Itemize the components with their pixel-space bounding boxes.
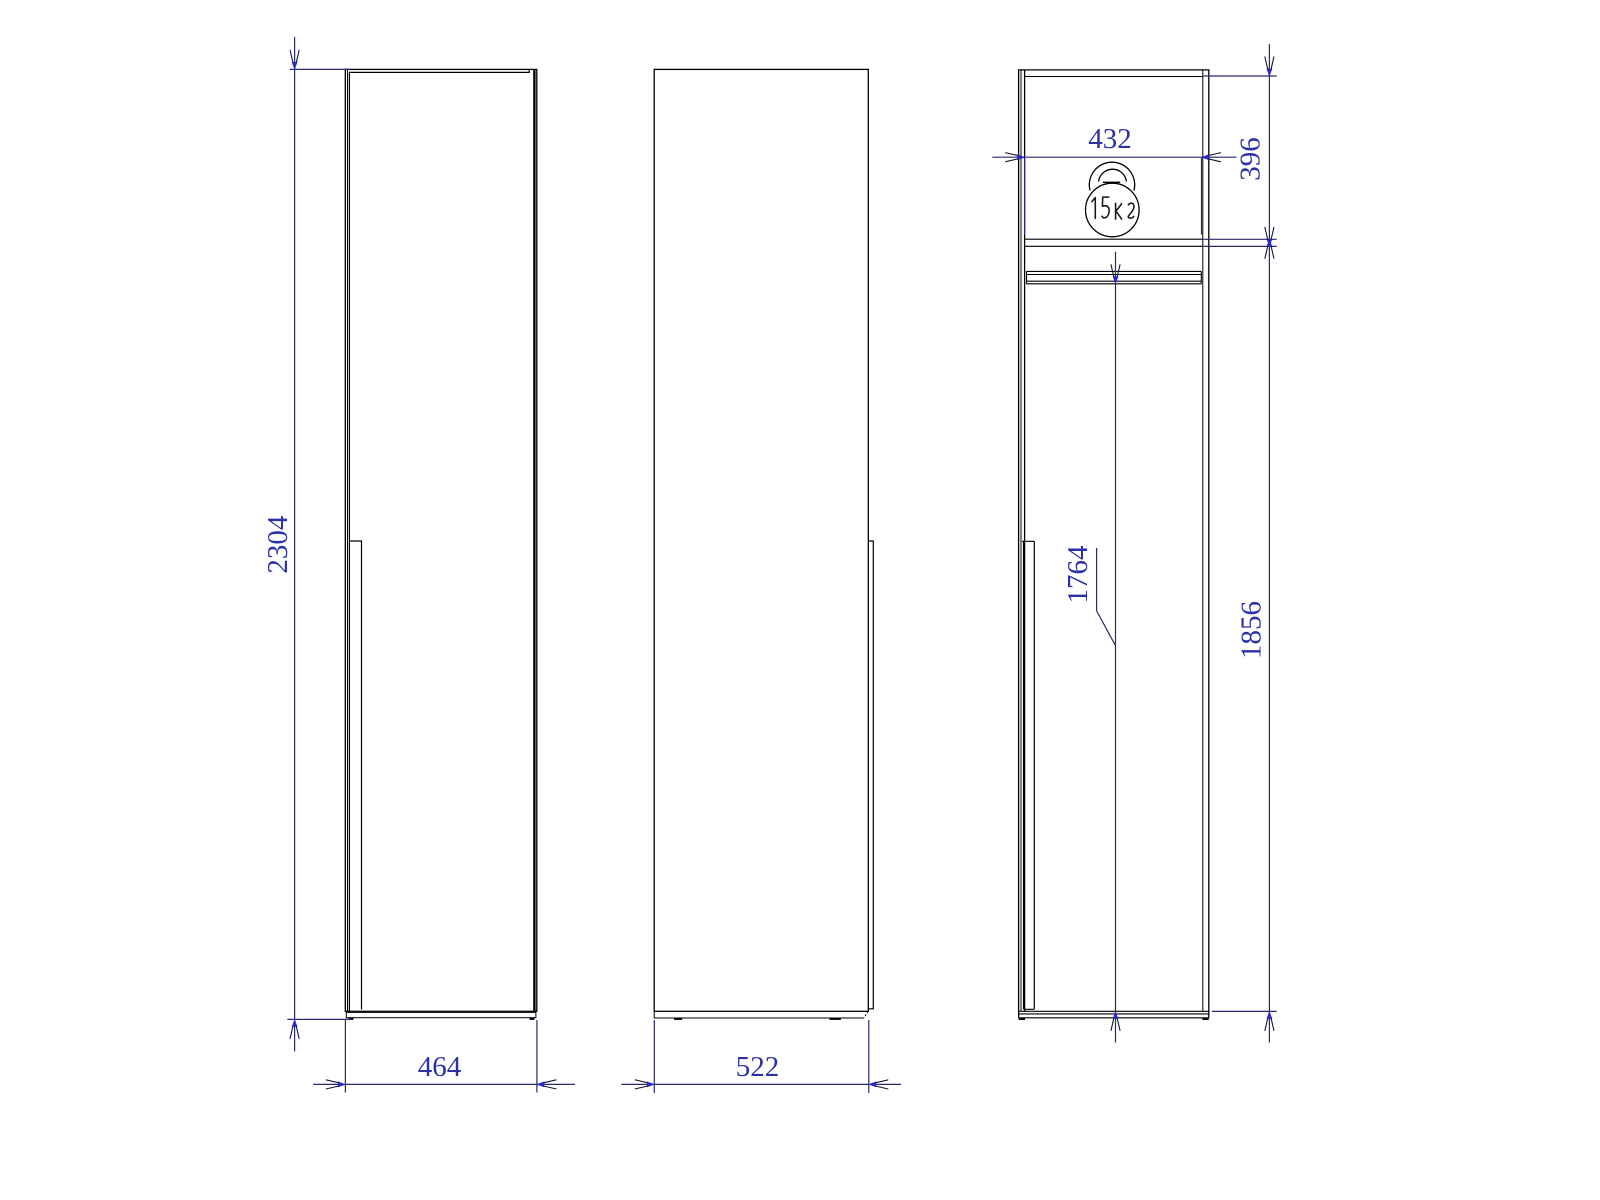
svg-text:522: 522 xyxy=(736,1051,780,1083)
svg-text:1856: 1856 xyxy=(1235,601,1267,659)
svg-text:396: 396 xyxy=(1234,137,1266,181)
svg-text:1764: 1764 xyxy=(1062,545,1094,604)
svg-text:432: 432 xyxy=(1088,123,1132,155)
svg-text:2304: 2304 xyxy=(262,515,294,574)
svg-text:464: 464 xyxy=(418,1051,462,1083)
